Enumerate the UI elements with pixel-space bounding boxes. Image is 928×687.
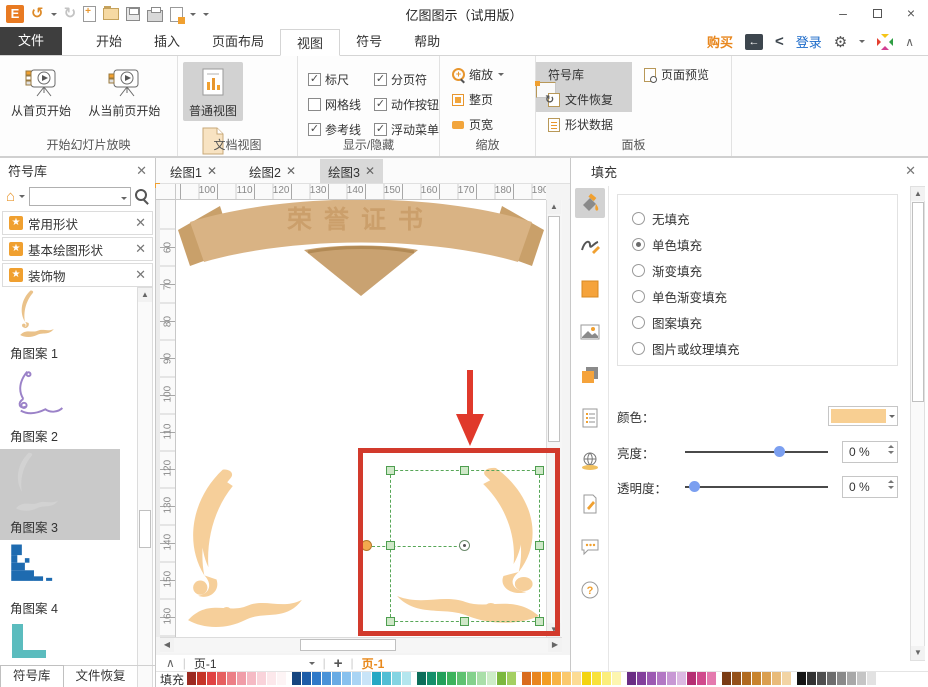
sidebar-scrollbar[interactable]: ▲ ▼	[137, 287, 153, 687]
radio-icon	[632, 316, 645, 329]
palette-swatch[interactable]	[352, 672, 361, 685]
ribbon-group-docview: 普通视图 背景视图 文档视图	[178, 56, 298, 156]
option-no-fill[interactable]: 无填充	[632, 205, 897, 231]
palette-swatch[interactable]	[312, 672, 321, 685]
ornament-graphic	[184, 466, 306, 632]
canvas-horizontal-scrollbar[interactable]: ◀ ▶	[160, 637, 562, 653]
canvas-area: 绘图1✕ 绘图2✕ 绘图3✕ 1001101201301401501601701…	[156, 158, 570, 655]
tab-view[interactable]: 视图	[280, 29, 340, 56]
palette-swatch[interactable]	[417, 672, 426, 685]
tab-help[interactable]: 帮助	[398, 28, 456, 55]
community-logo-icon[interactable]	[877, 34, 893, 50]
undo-icon[interactable]: ↺	[31, 6, 44, 22]
sidebar-tab-symbol-library[interactable]: 符号库	[0, 665, 64, 687]
radio-icon	[632, 264, 645, 277]
h-ruler-label: 120	[273, 185, 290, 196]
symbol-library-toggle[interactable]: 符号库	[536, 62, 632, 87]
annotation-arrow	[456, 370, 484, 446]
palette-swatch[interactable]	[507, 672, 516, 685]
palette-swatch[interactable]	[447, 672, 456, 685]
palette-group	[627, 672, 717, 685]
file-recovery-label: 文件恢复	[565, 91, 613, 108]
palette-swatch[interactable]	[487, 672, 496, 685]
library-item-label: 角图案 2	[6, 424, 155, 447]
page-width-label: 页宽	[469, 116, 493, 133]
menu-bar: 文件 开始 插入 页面布局 视图 符号 帮助 购买 ← < 登录 ⚙ ∧	[0, 28, 928, 56]
comment-tool-icon[interactable]	[575, 532, 605, 562]
checkbox-icon: ✓	[308, 123, 321, 136]
scroll-up-icon[interactable]: ▲	[138, 288, 152, 302]
print-icon[interactable]	[147, 10, 163, 22]
palette-swatch[interactable]	[207, 672, 216, 685]
checkbox-label: 分页符	[391, 71, 427, 88]
v-ruler-label: 140	[163, 537, 174, 551]
palette-swatch[interactable]	[257, 672, 266, 685]
palette-swatch[interactable]	[572, 672, 581, 685]
separator: |	[183, 656, 186, 670]
doc-tab-3[interactable]: 绘图3✕	[320, 159, 383, 183]
start-from-first-page-button[interactable]: 从首页开始	[5, 62, 77, 121]
palette-swatch[interactable]	[667, 672, 676, 685]
line-style-tool-icon[interactable]	[575, 231, 605, 261]
magnifier-plus-icon	[452, 69, 464, 81]
ribbon-group-showhide: ✓标尺 ✓分页符 网格线 ✓动作按钮 ✓参考线 ✓浮动菜单 显示/隐藏	[298, 56, 440, 156]
spin-arrows[interactable]	[888, 479, 894, 492]
corner-ornament-thumbnail	[6, 543, 68, 593]
palette-swatch[interactable]	[602, 672, 611, 685]
group-label-docview: 文档视图	[178, 136, 297, 153]
transparency-value: 0 %	[849, 480, 870, 494]
page-preview-toggle[interactable]: 页面预览	[632, 62, 709, 87]
palette-swatch[interactable]	[762, 672, 771, 685]
palette-swatch[interactable]	[847, 672, 856, 685]
menu-right-actions: 购买 ← < 登录 ⚙ ∧	[707, 28, 928, 55]
palette-swatch[interactable]	[772, 672, 781, 685]
palette-swatch[interactable]	[187, 672, 196, 685]
star-icon: ★	[9, 268, 23, 282]
palette-swatch[interactable]	[342, 672, 351, 685]
checkbox-icon: ✓	[374, 98, 387, 111]
redo-icon[interactable]: ↻	[64, 6, 77, 22]
palette-swatch[interactable]	[292, 672, 301, 685]
export-share-icon[interactable]: ←	[745, 34, 763, 50]
format-tool-strip: ?	[571, 186, 609, 671]
palette-swatch[interactable]	[382, 672, 391, 685]
shape-data-label: 形状数据	[565, 116, 613, 133]
library-item-label: 角图案 4	[6, 596, 155, 619]
library-item-label: 角图案 1	[6, 341, 155, 364]
separator: |	[323, 656, 326, 670]
h-ruler-label: 190	[532, 185, 546, 196]
option-pattern-fill[interactable]: 图案填充	[632, 309, 897, 335]
h-ruler-label: 140	[347, 185, 364, 196]
close-tab-icon[interactable]: ✕	[286, 164, 296, 178]
page-preview-icon	[644, 68, 656, 82]
palette-swatch[interactable]	[552, 672, 561, 685]
status-palette-bar: 填充	[156, 671, 928, 687]
tab-home[interactable]: 开始	[80, 28, 138, 55]
fill-panel-title: 填充	[591, 162, 617, 181]
checkbox-ruler[interactable]: ✓标尺	[308, 67, 374, 92]
scrollbar-thumb[interactable]	[139, 510, 151, 548]
palette-swatch[interactable]	[857, 672, 866, 685]
palette-group	[522, 672, 622, 685]
projector-icon	[107, 68, 141, 98]
minimize-button[interactable]: –	[826, 2, 860, 26]
h-ruler-label: 130	[310, 185, 327, 196]
palette-swatch[interactable]	[427, 672, 436, 685]
ruler-corner	[156, 184, 176, 200]
option-label: 单色渐变填充	[652, 287, 727, 306]
h-ruler-label: 150	[384, 185, 401, 196]
sidebar-tab-file-recovery[interactable]: 文件恢复	[64, 666, 138, 687]
home-icon[interactable]: ⌂	[6, 188, 15, 205]
share-icon[interactable]: <	[775, 33, 784, 50]
collapse-pagebar-icon[interactable]: ∧	[166, 656, 175, 670]
tab-page-layout[interactable]: 页面布局	[196, 28, 280, 55]
corner-ornament-thumbnail	[6, 369, 68, 421]
scrollbar-thumb[interactable]	[912, 202, 924, 402]
option-solid-fill[interactable]: 单色填充	[632, 231, 897, 257]
hyperlink-tool-icon[interactable]	[575, 446, 605, 476]
palette-swatch[interactable]	[637, 672, 646, 685]
shadow-tool-icon[interactable]	[575, 360, 605, 390]
palette-swatch[interactable]	[457, 672, 466, 685]
banner-title-text: 荣誉证书	[176, 200, 546, 236]
palette-swatch[interactable]	[807, 672, 816, 685]
h-ruler-label: 170	[458, 185, 475, 196]
palette-swatch[interactable]	[402, 672, 411, 685]
open-file-icon[interactable]	[103, 8, 119, 20]
normal-view-button[interactable]: 普通视图	[183, 62, 243, 121]
palette-swatch[interactable]	[497, 672, 506, 685]
close-tab-icon[interactable]: ✕	[207, 164, 217, 178]
shape-data-icon	[548, 118, 560, 132]
help-tool-icon[interactable]: ?	[575, 575, 605, 605]
scroll-down-icon[interactable]: ▼	[911, 646, 925, 660]
library-item-corner-4[interactable]: 角图案 4	[0, 540, 155, 621]
slider-thumb[interactable]	[774, 446, 785, 457]
brightness-label: 亮度：	[617, 443, 681, 462]
page-select-dropdown-icon[interactable]	[309, 662, 315, 668]
scroll-up-icon[interactable]: ▲	[911, 187, 925, 201]
current-color-swatch	[831, 409, 886, 423]
palette-swatch[interactable]	[867, 672, 876, 685]
palette-group	[797, 672, 877, 685]
fill-options-group: 无填充 单色填充 渐变填充 单色渐变填充 图案填充 图片或纹理填充	[617, 194, 898, 366]
page-width-button[interactable]: 页宽	[440, 112, 535, 137]
picture-tool-icon[interactable]	[575, 317, 605, 347]
palette-swatch[interactable]	[267, 672, 276, 685]
collapse-ribbon-icon[interactable]: ∧	[905, 35, 914, 49]
new-document-icon[interactable]	[83, 6, 96, 22]
title-bar: E ↺ ↻ 亿图图示（试用版） – ×	[0, 0, 928, 28]
ribbon: 从首页开始 从当前页开始 开始幻灯片放映	[0, 56, 928, 158]
v-ruler-label: 150	[163, 574, 174, 588]
login-button[interactable]: 登录	[796, 32, 822, 51]
close-tab-icon[interactable]: ✕	[365, 164, 375, 178]
scrollbar-thumb[interactable]	[548, 216, 560, 442]
palette-swatch[interactable]	[697, 672, 706, 685]
shape-data-toggle[interactable]: 形状数据	[536, 112, 632, 137]
corner-ornament-thumbnail	[6, 624, 50, 658]
palette-swatch[interactable]	[657, 672, 666, 685]
ribbon-group-zoom: 缩放 整页 页宽 缩放	[440, 56, 536, 156]
start-from-current-page-label: 从当前页开始	[88, 102, 160, 119]
fill-panel: 填充 ✕	[570, 158, 928, 671]
save-icon[interactable]	[126, 7, 140, 21]
palette-swatch[interactable]	[582, 672, 591, 685]
palette-group	[187, 672, 287, 685]
settings-dropdown-icon[interactable]	[859, 40, 865, 46]
section-decorations[interactable]: ★ 装饰物 ✕	[2, 263, 153, 287]
group-label-slideshow: 开始幻灯片放映	[0, 136, 177, 153]
palette-swatch[interactable]	[707, 672, 716, 685]
certificate-banner[interactable]: 荣誉证书	[176, 200, 546, 300]
page-preview-label: 页面预览	[661, 66, 709, 83]
palette-swatch[interactable]	[362, 672, 371, 685]
library-item-corner-2[interactable]: 角图案 2	[0, 366, 155, 449]
section-label: 基本绘图形状	[28, 240, 103, 259]
doc-tab-label: 绘图3	[328, 162, 360, 181]
home-dropdown-icon[interactable]	[19, 195, 25, 201]
page-bar: ∧ | 页-1 | + | 页-1	[156, 655, 570, 671]
app-window: E ↺ ↻ 亿图图示（试用版） – × 文件 开始 插入 页面布局 视图 符号 …	[0, 0, 928, 687]
spin-arrows[interactable]	[888, 444, 894, 457]
palette-group	[722, 672, 792, 685]
palette-swatch[interactable]	[592, 672, 601, 685]
fit-page-label: 整页	[469, 91, 493, 108]
option-gradient-fill[interactable]: 渐变填充	[632, 257, 897, 283]
palette-swatch[interactable]	[827, 672, 836, 685]
corner-ornament-thumbnail	[6, 452, 68, 512]
palette-swatch[interactable]	[322, 672, 331, 685]
corner-ornament-thumbnail	[6, 290, 68, 338]
doc-tab-label: 绘图1	[170, 162, 202, 181]
ribbon-group-panel: 符号库 文件恢复 形状数据 页面预览 面板	[536, 56, 732, 156]
fit-page-icon	[452, 94, 464, 106]
search-icon[interactable]	[135, 189, 149, 203]
checkbox-gridlines[interactable]: 网格线	[308, 92, 374, 117]
brightness-spinbox[interactable]: 0 %	[842, 441, 898, 463]
palette-swatch[interactable]	[522, 672, 531, 685]
tab-symbols[interactable]: 符号	[340, 28, 398, 55]
checkbox-label: 标尺	[325, 71, 349, 88]
palette-group	[417, 672, 517, 685]
color-picker[interactable]	[828, 406, 898, 426]
scroll-right-icon[interactable]: ▶	[548, 638, 562, 652]
color-dropdown-icon	[889, 415, 895, 421]
palette-swatch[interactable]	[752, 672, 761, 685]
checkbox-icon: ✓	[308, 73, 321, 86]
page-width-icon	[452, 121, 464, 129]
palette-swatch[interactable]	[217, 672, 226, 685]
palette-swatch[interactable]	[477, 672, 486, 685]
solid-color-tool-icon[interactable]	[575, 274, 605, 304]
zoom-label: 缩放	[469, 66, 493, 83]
palette-swatch[interactable]	[817, 672, 826, 685]
start-from-current-page-button[interactable]: 从当前页开始	[82, 62, 166, 121]
separator: |	[350, 656, 353, 670]
palette-swatch[interactable]	[197, 672, 206, 685]
option-label: 单色填充	[652, 235, 702, 254]
transparency-spinbox[interactable]: 0 %	[842, 476, 898, 498]
star-icon: ★	[9, 216, 23, 230]
v-ruler: 60708090100110120130140150160	[160, 200, 176, 637]
tab-insert[interactable]: 插入	[138, 28, 196, 55]
close-button[interactable]: ×	[894, 2, 928, 26]
symbol-library-label: 符号库	[548, 66, 584, 83]
slider-thumb[interactable]	[689, 481, 700, 492]
v-ruler-label: 120	[163, 463, 174, 477]
doc-tab-2[interactable]: 绘图2✕	[241, 159, 304, 183]
buy-button[interactable]: 购买	[707, 32, 733, 51]
palette-swatch[interactable]	[532, 672, 541, 685]
palette-swatch[interactable]	[302, 672, 311, 685]
add-page-button[interactable]: +	[334, 655, 343, 672]
section-basic-drawing-shapes[interactable]: ★ 基本绘图形状 ✕	[2, 237, 153, 261]
palette-swatches	[187, 672, 882, 687]
file-recovery-icon	[548, 93, 560, 107]
library-search-combobox[interactable]	[29, 187, 131, 206]
checkbox-label: 动作按钮	[391, 96, 439, 113]
shape-data-tool-icon[interactable]	[575, 403, 605, 433]
library-item-corner-1[interactable]: 角图案 1	[0, 287, 155, 366]
close-section-icon[interactable]: ✕	[135, 215, 146, 231]
option-picture-texture-fill[interactable]: 图片或纹理填充	[632, 335, 897, 361]
library-item-corner-3[interactable]: 角图案 3	[0, 449, 120, 540]
ribbon-group-slideshow: 从首页开始 从当前页开始 开始幻灯片放映	[0, 56, 178, 156]
checkbox-label: 网格线	[325, 96, 361, 113]
quick-access-toolbar: E ↺ ↻	[0, 5, 209, 23]
note-tool-icon[interactable]	[575, 489, 605, 519]
scroll-left-icon[interactable]: ◀	[160, 638, 174, 652]
gear-icon[interactable]: ⚙	[834, 33, 847, 51]
palette-swatch[interactable]	[742, 672, 751, 685]
section-label: 常用形状	[28, 214, 78, 233]
transparency-label: 透明度：	[617, 478, 681, 497]
option-label: 图片或纹理填充	[652, 339, 740, 358]
radio-icon	[632, 290, 645, 303]
brightness-value: 0 %	[849, 445, 870, 459]
v-ruler-label: 110	[163, 426, 174, 440]
customize-toolbar-icon[interactable]	[203, 13, 209, 19]
palette-swatch[interactable]	[782, 672, 791, 685]
palette-swatch[interactable]	[237, 672, 246, 685]
palette-swatch[interactable]	[542, 672, 551, 685]
v-ruler-label: 70	[163, 278, 174, 292]
export-dropdown-icon[interactable]	[190, 13, 196, 19]
radio-icon	[632, 342, 645, 355]
palette-swatch[interactable]	[467, 672, 476, 685]
palette-swatch[interactable]	[227, 672, 236, 685]
palette-swatch[interactable]	[332, 672, 341, 685]
section-common-shapes[interactable]: ★ 常用形状 ✕	[2, 211, 153, 235]
palette-swatch[interactable]	[627, 672, 636, 685]
v-ruler-label: 60	[163, 241, 174, 255]
palette-swatch[interactable]	[562, 672, 571, 685]
v-ruler-label: 160	[163, 611, 174, 625]
color-label: 颜色：	[617, 407, 681, 426]
transparency-slider[interactable]	[685, 486, 828, 488]
h-ruler-label: 160	[421, 185, 438, 196]
undo-dropdown-icon[interactable]	[51, 13, 57, 19]
star-icon: ★	[9, 242, 23, 256]
option-label: 无填充	[652, 209, 690, 228]
fit-page-button[interactable]: 整页	[440, 87, 535, 112]
maximize-button[interactable]	[860, 2, 894, 26]
page-tab-active[interactable]: 页-1	[362, 655, 385, 672]
palette-swatch[interactable]	[392, 672, 401, 685]
doc-tab-label: 绘图2	[249, 162, 281, 181]
radio-icon	[632, 238, 645, 251]
fill-tool-icon[interactable]	[575, 188, 605, 218]
corner-ornament-left[interactable]	[184, 466, 306, 632]
combobox-dropdown-icon	[121, 197, 127, 203]
palette-swatch[interactable]	[722, 672, 731, 685]
svg-text:?: ?	[587, 585, 594, 597]
close-section-icon[interactable]: ✕	[135, 267, 146, 283]
palette-swatch[interactable]	[437, 672, 446, 685]
palette-swatch[interactable]	[647, 672, 656, 685]
palette-swatch[interactable]	[797, 672, 806, 685]
h-ruler-label: 110	[237, 185, 253, 196]
palette-swatch[interactable]	[612, 672, 621, 685]
export-icon[interactable]	[170, 7, 183, 22]
projector-icon	[24, 68, 58, 98]
library-item-corner-5[interactable]	[0, 621, 155, 663]
library-item-label: 角图案 3	[6, 515, 120, 538]
close-fill-panel-icon[interactable]: ✕	[905, 163, 916, 179]
scroll-up-icon[interactable]: ▲	[547, 200, 561, 214]
option-single-color-gradient-fill[interactable]: 单色渐变填充	[632, 283, 897, 309]
palette-swatch[interactable]	[677, 672, 686, 685]
fill-panel-scrollbar[interactable]: ▲ ▼	[910, 186, 925, 661]
section-label: 装饰物	[28, 266, 66, 285]
palette-swatch[interactable]	[247, 672, 256, 685]
palette-swatch[interactable]	[837, 672, 846, 685]
checkbox-icon	[308, 98, 321, 111]
option-label: 渐变填充	[652, 261, 702, 280]
document-tab-bar: 绘图1✕ 绘图2✕ 绘图3✕	[156, 158, 570, 184]
zoom-button[interactable]: 缩放	[440, 62, 535, 87]
zoom-dropdown-icon[interactable]	[498, 73, 504, 79]
radio-icon	[632, 212, 645, 225]
v-ruler-label: 80	[163, 315, 174, 329]
palette-group	[292, 672, 412, 685]
close-section-icon[interactable]: ✕	[135, 241, 146, 257]
v-ruler-label: 130	[163, 500, 174, 514]
checkbox-icon: ✓	[374, 73, 387, 86]
v-ruler-label: 90	[163, 352, 174, 366]
normal-view-label: 普通视图	[189, 102, 237, 119]
group-label-panel: 面板	[536, 136, 731, 153]
brightness-slider[interactable]	[685, 451, 828, 453]
scrollbar-thumb[interactable]	[300, 639, 396, 651]
palette-swatch[interactable]	[372, 672, 381, 685]
palette-swatch[interactable]	[732, 672, 741, 685]
tab-file[interactable]: 文件	[0, 27, 62, 55]
group-label-zoom: 缩放	[440, 136, 535, 153]
doc-tab-1[interactable]: 绘图1✕	[162, 159, 225, 183]
palette-swatch[interactable]	[277, 672, 286, 685]
close-sidebar-icon[interactable]: ✕	[136, 163, 147, 179]
normal-view-icon	[200, 68, 226, 98]
maximize-icon	[873, 9, 882, 18]
palette-swatch[interactable]	[687, 672, 696, 685]
page-select[interactable]: 页-1	[194, 655, 217, 672]
start-from-first-page-label: 从首页开始	[11, 102, 71, 119]
